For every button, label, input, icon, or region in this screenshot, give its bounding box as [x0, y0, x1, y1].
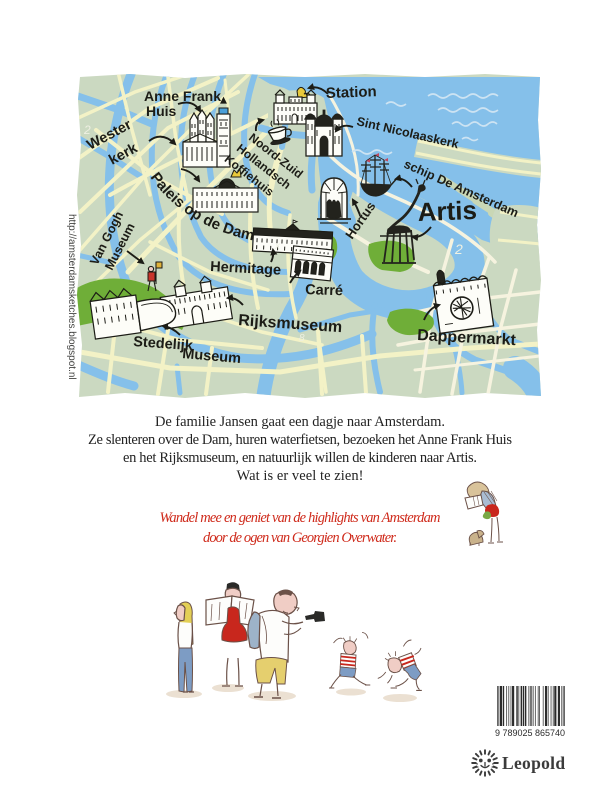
svg-text:Anne Frank: Anne Frank: [144, 88, 221, 104]
svg-text:en het Rijksmuseum, en natuurl: en het Rijksmuseum, en natuurlijk willen…: [123, 450, 477, 466]
svg-text:x: x: [274, 241, 281, 252]
svg-text:2: 2: [83, 123, 91, 137]
svg-text:Wat is er veel te zien!: Wat is er veel te zien!: [237, 468, 364, 484]
svg-text:Ze slenteren over de Dam, hure: Ze slenteren over de Dam, huren waterfie…: [88, 432, 512, 448]
svg-text:2: 2: [454, 241, 463, 257]
svg-text:Huis: Huis: [146, 103, 177, 119]
svg-text:door de ogen van Georgien Over: door de ogen van Georgien Overwater.: [203, 530, 397, 546]
svg-text:Wandel mee en geniet van de hi: Wandel mee en geniet van de highlights v…: [160, 510, 441, 526]
svg-text:9 789025 865740: 9 789025 865740: [495, 728, 565, 739]
svg-text:De familie Jansen gaat een dag: De familie Jansen gaat een dagje naar Am…: [155, 414, 445, 430]
svg-text:Station: Station: [326, 83, 377, 102]
svg-text:Carré: Carré: [305, 282, 343, 299]
svg-text:http://amsterdamsketches.blogs: http://amsterdamsketches.blogspot.nl: [66, 214, 77, 380]
svg-text:8: 8: [299, 333, 305, 344]
svg-text:Leopold: Leopold: [502, 753, 565, 773]
svg-text:Artis: Artis: [417, 195, 477, 227]
